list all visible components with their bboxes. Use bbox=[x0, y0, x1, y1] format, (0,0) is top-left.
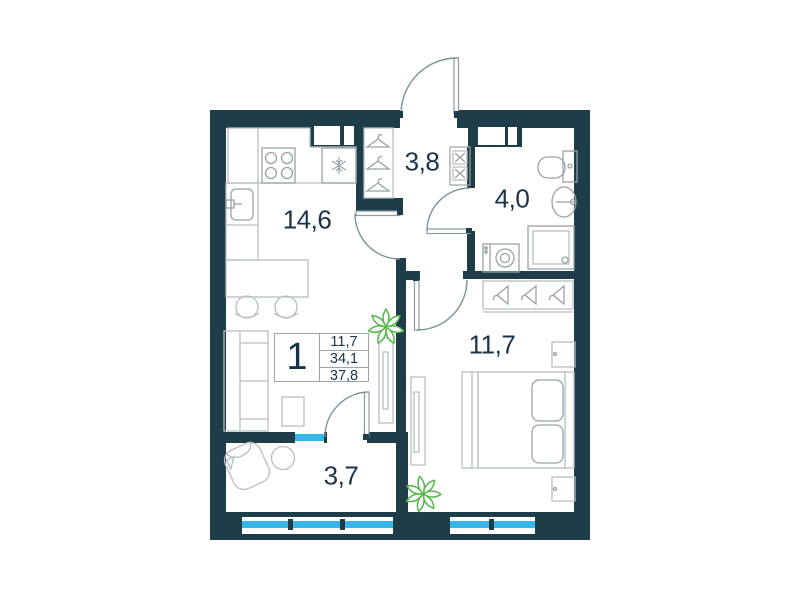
kitchen-door-leaf bbox=[356, 211, 400, 216]
room-label-hallway: 3,8 bbox=[405, 147, 440, 178]
coffee-table bbox=[282, 397, 304, 426]
balcony-furniture bbox=[221, 439, 295, 493]
wall-bath-left-upper bbox=[467, 147, 475, 188]
unit-area-apartment: 34,1 bbox=[320, 350, 368, 367]
bed bbox=[462, 372, 574, 468]
window-living-balcony bbox=[295, 434, 324, 441]
floor-plan-drawing bbox=[0, 0, 800, 600]
room-label-balcony: 3,7 bbox=[324, 461, 359, 492]
vent-shafts bbox=[314, 126, 517, 145]
kitchen-door-arc bbox=[355, 214, 400, 259]
room-label-bedroom: 11,7 bbox=[469, 330, 516, 361]
floor-plan: 14,6 3,8 4,0 11,7 3,7 1 11,7 34,1 37,8 bbox=[0, 0, 800, 600]
unit-info-box: 1 11,7 34,1 37,8 bbox=[274, 333, 369, 382]
dining-table bbox=[226, 260, 308, 297]
bathroom-door-leaf bbox=[427, 229, 470, 234]
tv-stand-living bbox=[379, 338, 393, 423]
nightstand bbox=[552, 477, 575, 501]
wall-left bbox=[210, 110, 226, 540]
bedroom-door-leaf bbox=[415, 280, 420, 330]
bedroom-furniture bbox=[411, 281, 575, 501]
hanger-icon bbox=[522, 286, 536, 304]
nightstand bbox=[552, 342, 575, 367]
wall-top-left bbox=[210, 110, 400, 128]
balcony-door-arc bbox=[325, 392, 367, 437]
window-balcony bbox=[242, 521, 393, 528]
wall-balcony-bedroom bbox=[396, 432, 408, 532]
round-table bbox=[272, 447, 295, 470]
washing-machine-icon bbox=[483, 244, 519, 272]
bathroom-door-arc bbox=[427, 188, 470, 231]
armchair bbox=[221, 439, 273, 493]
balcony-door-leaf bbox=[365, 392, 370, 437]
wall-corridor bbox=[396, 258, 406, 433]
hanger-icon bbox=[550, 286, 564, 304]
chair bbox=[275, 296, 297, 318]
room-label-bathroom: 4,0 bbox=[495, 184, 530, 215]
bedroom-door-arc bbox=[417, 280, 467, 330]
hanger-icon bbox=[494, 286, 508, 304]
unit-number: 1 bbox=[275, 334, 320, 381]
entrance-door-arc bbox=[401, 58, 457, 114]
snowflake-icon bbox=[332, 157, 346, 174]
entrance-door-leaf bbox=[454, 58, 459, 114]
walls bbox=[210, 110, 590, 540]
toilet-icon bbox=[538, 151, 577, 182]
wall-kitchen-hall bbox=[356, 128, 364, 198]
shower-icon bbox=[528, 226, 574, 269]
room-label-kitchen-living: 14,6 bbox=[283, 205, 332, 236]
wall-bath-left-lower bbox=[467, 231, 475, 277]
unit-area-total: 37,8 bbox=[320, 367, 368, 384]
sink-icon bbox=[552, 187, 576, 217]
unit-area-living: 11,7 bbox=[320, 334, 368, 350]
chair bbox=[236, 296, 258, 318]
